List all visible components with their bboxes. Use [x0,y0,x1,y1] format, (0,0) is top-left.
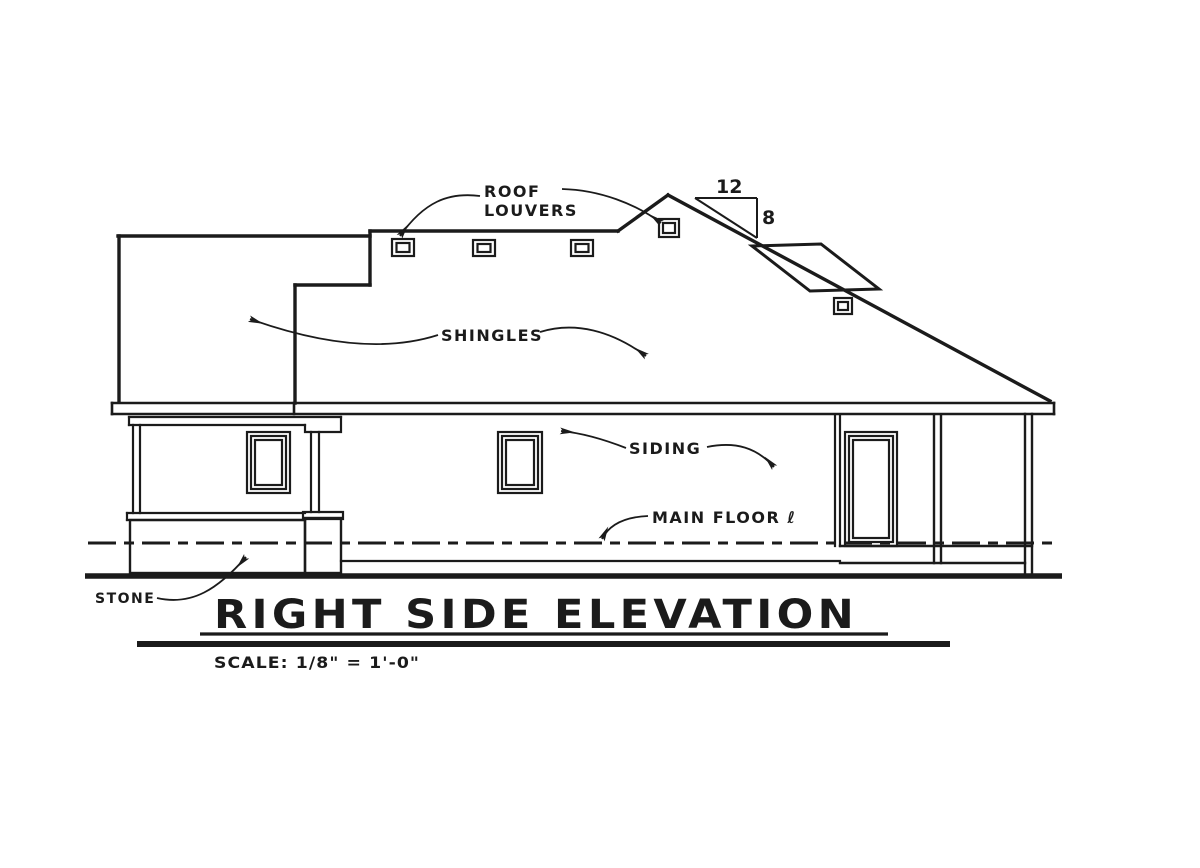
porch-post-corner [311,432,319,512]
leader-shingles-left [250,319,438,344]
elevation-drawing: 12 8 [0,0,1200,868]
label-stone: STONE [95,591,155,607]
pitch-indicator [695,198,757,238]
window-middle [498,432,542,493]
roof-louver [659,219,679,237]
roof-louvers [392,219,852,314]
right-porch-post [934,415,941,563]
leader-siding-left [561,431,626,448]
roof-louver [834,298,852,314]
drawing-title: RIGHT SIDE ELEVATION [214,592,858,638]
leader-siding-right [707,445,774,467]
roof-louver [571,240,593,256]
window-left [247,432,290,493]
pitch-run-label: 12 [716,176,742,198]
roof-upslope [618,195,668,231]
label-louvers: LOUVERS [484,201,578,220]
leader-shingles-right [540,328,646,356]
stone-pier [305,518,341,573]
fascia-band [112,403,1054,414]
label-siding: SIDING [629,439,701,458]
label-shingles: SHINGLES [441,326,543,345]
porch-beam-step [305,417,341,432]
leader-main-floor [602,516,648,539]
corner-boards [835,415,840,546]
roof-louver [392,239,414,256]
roof-outline [118,195,1050,403]
door [845,432,897,546]
left-porch [127,417,343,520]
label-roof: ROOF [484,182,540,201]
right-porch [840,414,1032,573]
right-porch-corner-post [1025,414,1032,573]
porch-post-left [133,425,140,513]
elevation-sheet: 12 8 [0,0,1200,868]
roof-downslope [668,195,1050,401]
pitch-rise-label: 8 [762,207,775,229]
pitch-hypotenuse [695,198,757,238]
stone-skirt [130,520,305,573]
stone-base [130,518,341,573]
roof-louver [473,240,495,256]
label-main-floor: MAIN FLOOR ℓ [652,508,796,527]
scale-note: SCALE: 1/8" = 1'-0" [214,653,420,672]
leader-lines [157,189,774,600]
